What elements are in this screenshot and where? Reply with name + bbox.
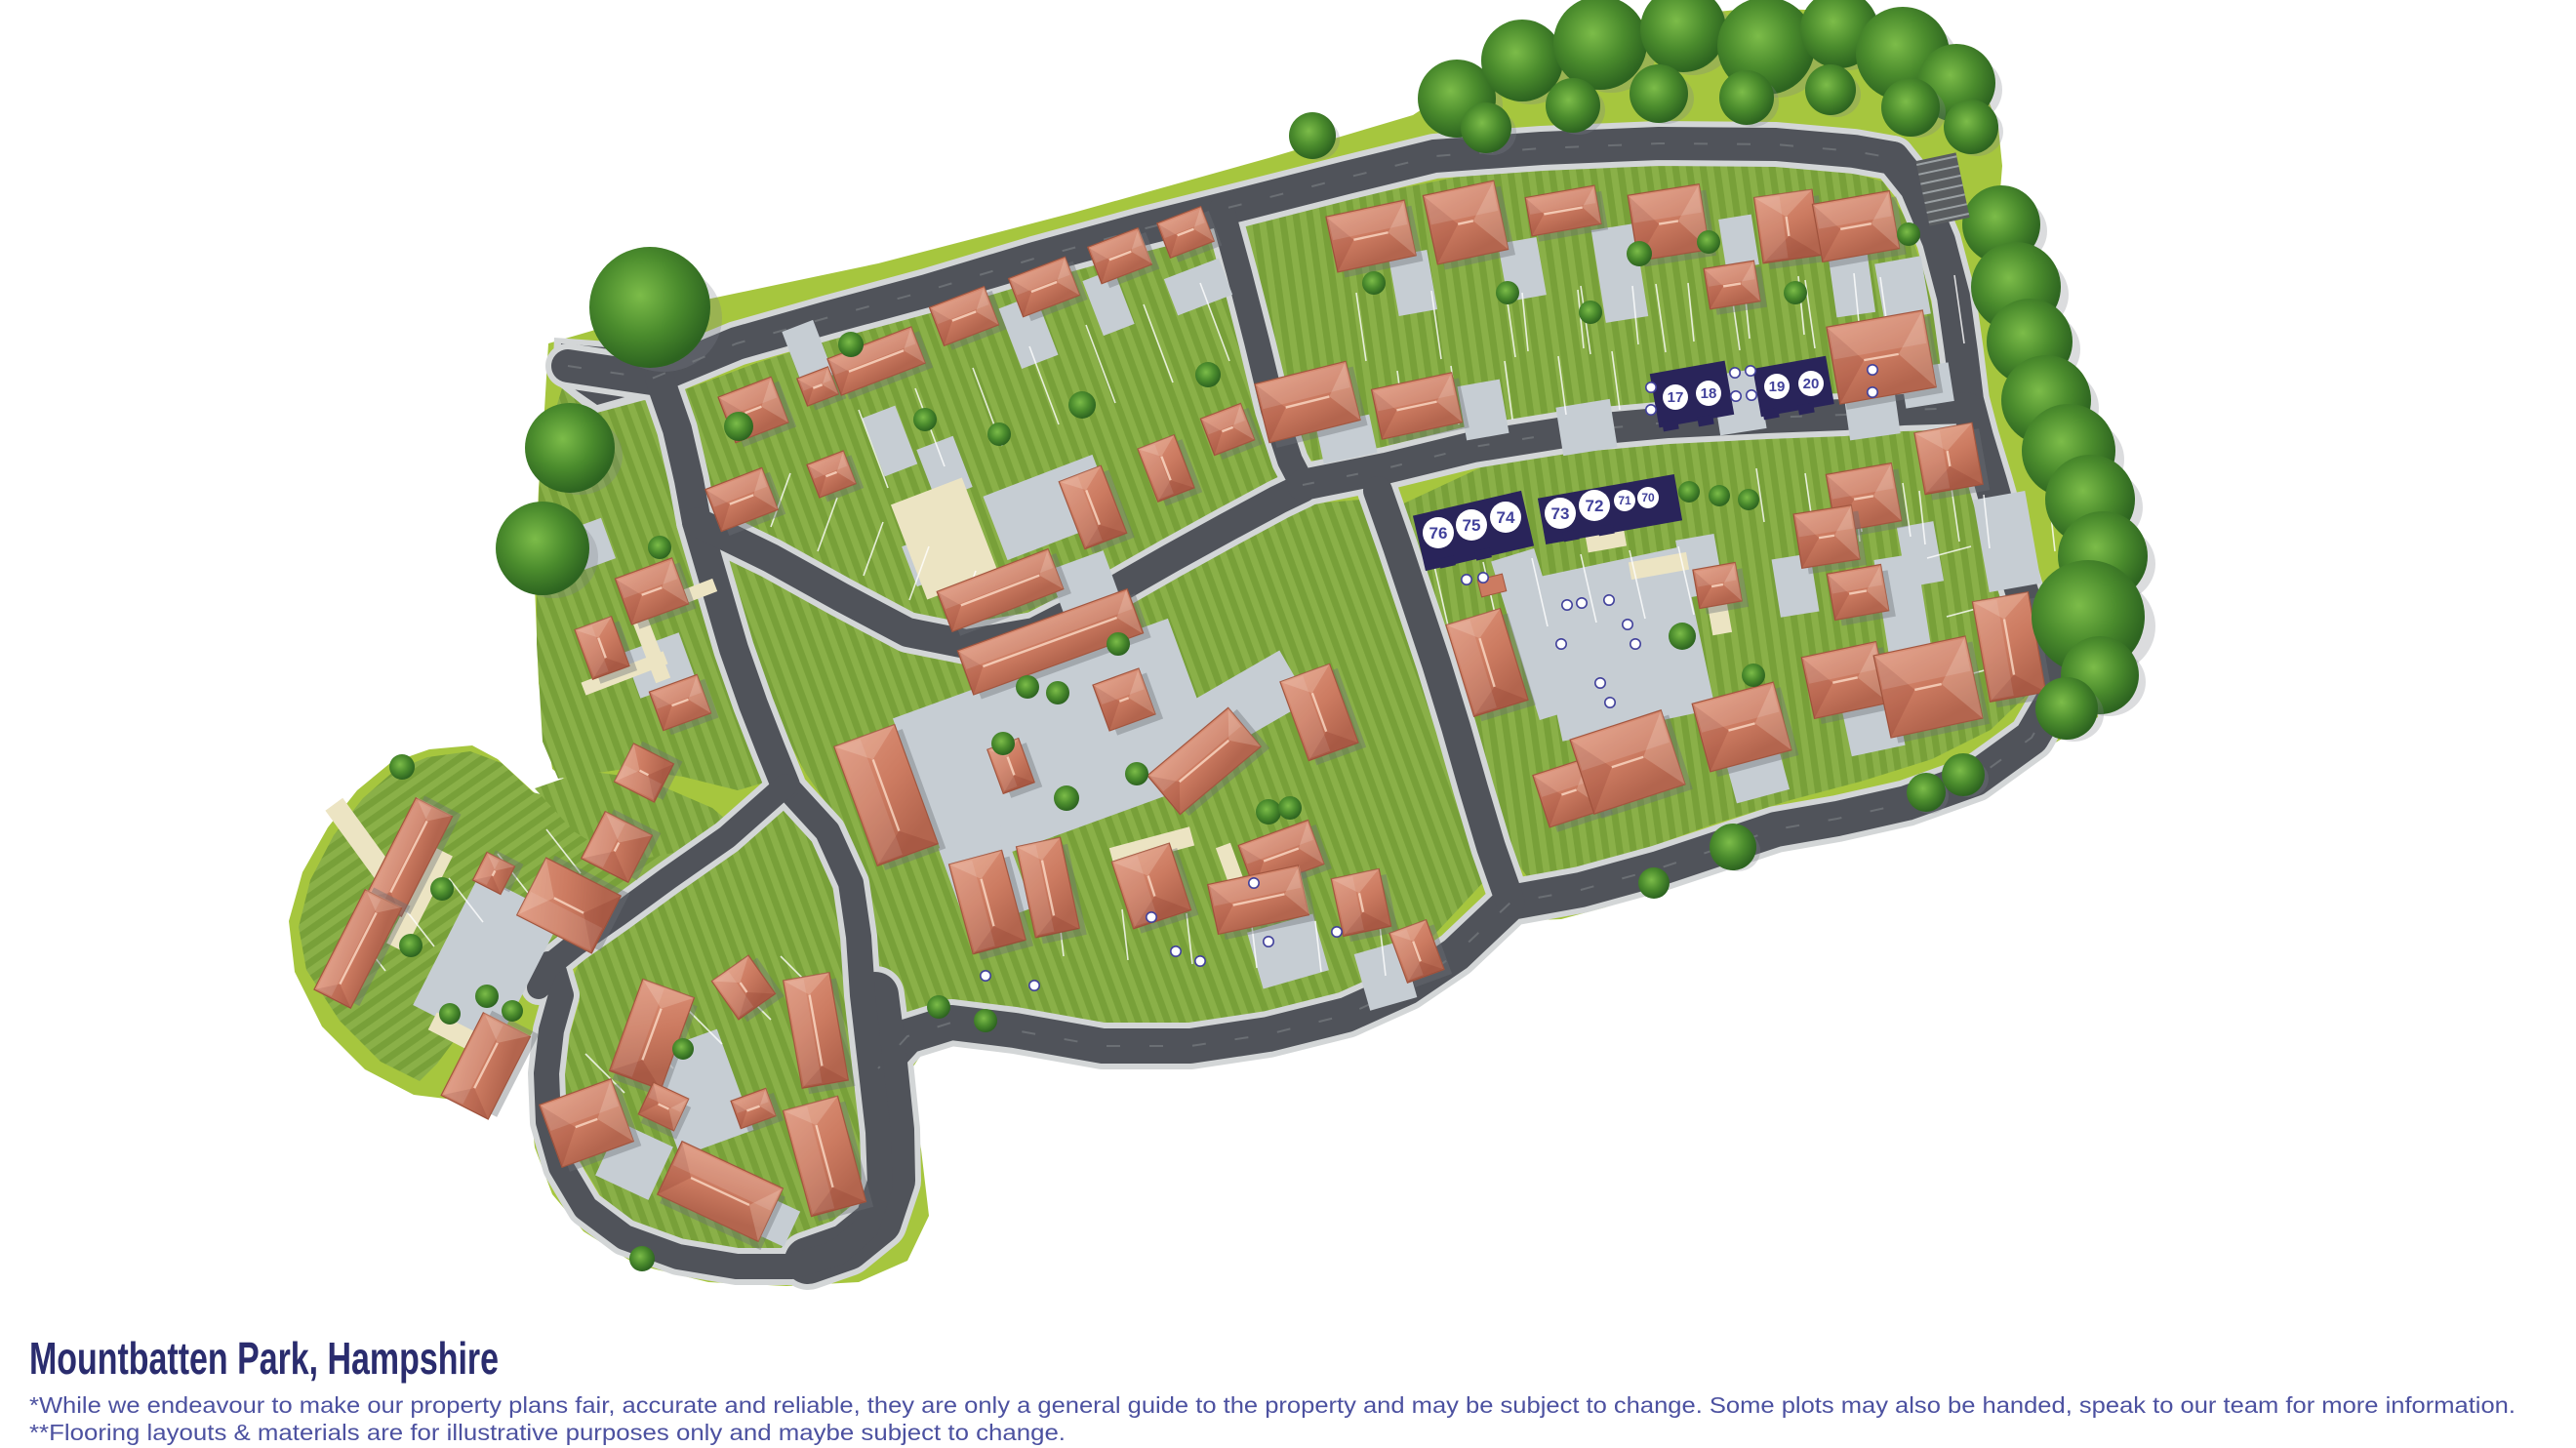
svg-text:74: 74 — [1497, 508, 1515, 527]
svg-text:17: 17 — [1668, 389, 1684, 406]
svg-text:19: 19 — [1769, 379, 1786, 395]
svg-text:18: 18 — [1701, 385, 1717, 402]
svg-text:75: 75 — [1463, 516, 1481, 535]
svg-text:Mountbatten Park, Hampshire: Mountbatten Park, Hampshire — [29, 1333, 499, 1384]
svg-text:70: 70 — [1641, 491, 1655, 504]
svg-text:72: 72 — [1586, 497, 1604, 515]
svg-text:*While we endeavour to make ou: *While we endeavour to make our property… — [29, 1392, 2516, 1418]
svg-text:71: 71 — [1618, 494, 1631, 507]
svg-text:73: 73 — [1551, 504, 1570, 523]
svg-text:76: 76 — [1429, 524, 1448, 543]
svg-text:20: 20 — [1803, 376, 1820, 392]
svg-text:**Flooring layouts & materials: **Flooring layouts & materials are for i… — [29, 1420, 1066, 1445]
